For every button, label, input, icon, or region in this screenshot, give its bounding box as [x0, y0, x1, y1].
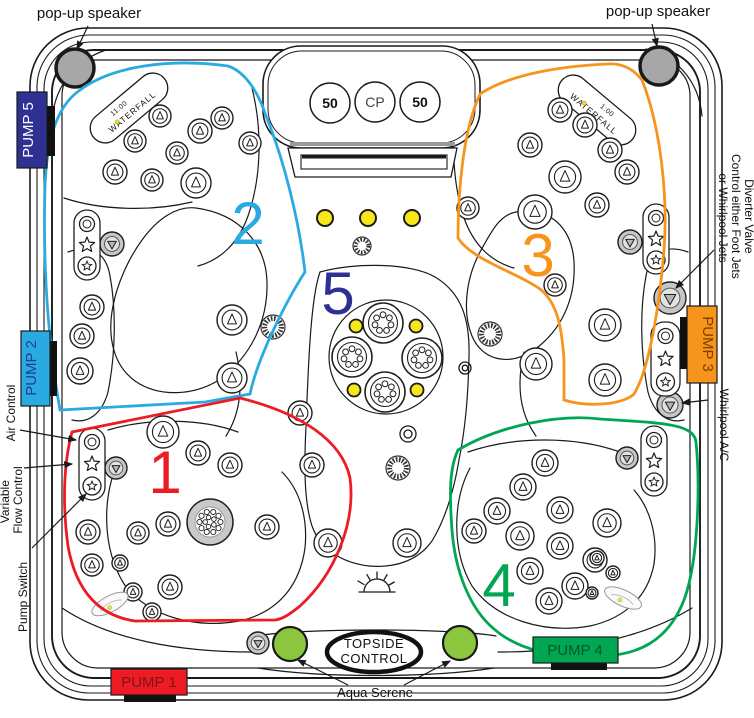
topside-line1: TOPSIDE	[344, 636, 404, 651]
jet	[510, 474, 536, 500]
air-control-label: Air Control	[4, 385, 18, 442]
sun-icon	[358, 572, 395, 592]
venturi-control	[353, 237, 371, 255]
control-cluster	[651, 322, 680, 396]
control-knob	[105, 457, 127, 479]
jets-layer	[67, 98, 686, 654]
jet	[81, 554, 103, 576]
pump-1-label: PUMP 1	[121, 674, 177, 691]
hot-tub-jet-diagram: 50 CP 50 11:00 WATERFALL 1:00 WATERFALL	[0, 0, 754, 718]
control-knob	[618, 230, 642, 254]
jet	[211, 107, 233, 129]
jet	[70, 324, 94, 348]
control-knob	[616, 447, 638, 469]
jet	[518, 133, 542, 157]
diagram-canvas: 50 CP 50 11:00 WATERFALL 1:00 WATERFALL	[0, 0, 754, 718]
jet	[217, 305, 247, 335]
pump-5-label: PUMP 5	[20, 102, 37, 158]
button-50-right-label: 50	[412, 94, 428, 110]
venturi-control	[261, 315, 285, 339]
jet	[217, 363, 247, 393]
jet	[548, 98, 572, 122]
jet	[158, 575, 182, 599]
variable-flow-line2: Flow Control	[11, 466, 25, 533]
waterfall-slot	[288, 144, 457, 177]
footwell-light	[411, 384, 424, 397]
foot-jet	[402, 338, 442, 378]
air-control-arrow	[20, 430, 76, 440]
jet	[586, 587, 598, 599]
aqua-serene-light-left	[273, 627, 307, 661]
jet	[462, 519, 486, 543]
brand-oval	[601, 582, 644, 613]
control-cluster	[74, 210, 100, 280]
jet	[143, 603, 161, 621]
zone-4-number: 4	[482, 552, 515, 619]
spa-light	[360, 210, 376, 226]
jet	[589, 364, 621, 396]
jet	[547, 497, 573, 523]
jet	[562, 573, 588, 599]
jet	[181, 168, 211, 198]
popup-speaker-left	[56, 49, 94, 87]
pump-3-label: PUMP 3	[699, 316, 716, 372]
jet	[506, 522, 534, 550]
zone-3-number: 3	[521, 222, 554, 289]
foot-jet	[332, 337, 372, 377]
zone-5-number: 5	[321, 260, 354, 327]
topside-control: TOPSIDE CONTROL	[327, 632, 421, 672]
aqua-serene-light-right	[443, 626, 477, 660]
jet	[188, 119, 212, 143]
speaker-right-label: pop-up speaker	[606, 3, 710, 20]
jet	[80, 295, 104, 319]
diverter-line3: or Whirlpool Jets	[716, 173, 730, 262]
jet	[549, 161, 581, 193]
jet	[484, 498, 510, 524]
popup-speaker-right	[640, 47, 678, 85]
whirlpool-ac-arrow	[682, 400, 708, 403]
control-cluster	[79, 428, 105, 500]
jet	[615, 160, 639, 184]
jet	[67, 358, 93, 384]
venturi-control	[386, 456, 410, 480]
jet	[218, 453, 242, 477]
aqua-serene-label: Aqua Serene	[337, 685, 413, 700]
jet	[239, 132, 261, 154]
control-knob	[247, 632, 269, 654]
top-pillow: 50 CP 50	[263, 46, 480, 148]
jet	[149, 105, 171, 127]
whirlpool-ac-label: Whirlpool A/C	[717, 389, 731, 462]
jet	[532, 450, 558, 476]
jet	[590, 551, 604, 565]
jet	[536, 588, 562, 614]
control-cluster	[641, 426, 667, 496]
zone-1-number: 1	[148, 439, 181, 506]
jet	[255, 515, 279, 539]
jet	[124, 130, 146, 152]
variable-flow-label: Variable Flow Control	[0, 466, 25, 533]
jet	[606, 566, 620, 580]
button-50-left-label: 50	[322, 95, 338, 111]
foot-jet	[363, 303, 403, 343]
jet	[166, 142, 188, 164]
pump-switch-label: Pump Switch	[16, 562, 30, 632]
spa-light	[317, 210, 333, 226]
pump-switch-arrow	[32, 494, 86, 548]
jet	[573, 113, 597, 137]
pump-4-label: PUMP 4	[547, 642, 603, 659]
zone-2-number: 2	[231, 190, 264, 257]
jet	[589, 309, 621, 341]
jet	[547, 533, 573, 559]
jet	[300, 453, 324, 477]
footwell-light	[348, 384, 361, 397]
jet	[520, 348, 552, 380]
topside-line2: CONTROL	[340, 651, 407, 666]
jet	[141, 169, 163, 191]
footwell-light	[410, 320, 423, 333]
jet	[517, 558, 543, 584]
jet	[186, 441, 210, 465]
jet	[598, 138, 622, 162]
jet	[585, 193, 609, 217]
whirlpool-jet	[187, 499, 233, 545]
control-knob	[100, 232, 124, 256]
jet	[103, 160, 127, 184]
jet	[127, 522, 149, 544]
speaker-left-label: pop-up speaker	[37, 5, 141, 22]
jet	[393, 529, 421, 557]
venturi-control	[478, 322, 502, 346]
spa-light	[404, 210, 420, 226]
jet	[76, 520, 100, 544]
jet	[156, 512, 180, 536]
jet	[112, 555, 128, 571]
diverter-line2: Control either Foot Jets	[729, 154, 743, 279]
button-cp-label: CP	[365, 94, 384, 110]
pump-2-label: PUMP 2	[23, 340, 40, 396]
foot-jet	[365, 372, 405, 412]
jet	[593, 509, 621, 537]
